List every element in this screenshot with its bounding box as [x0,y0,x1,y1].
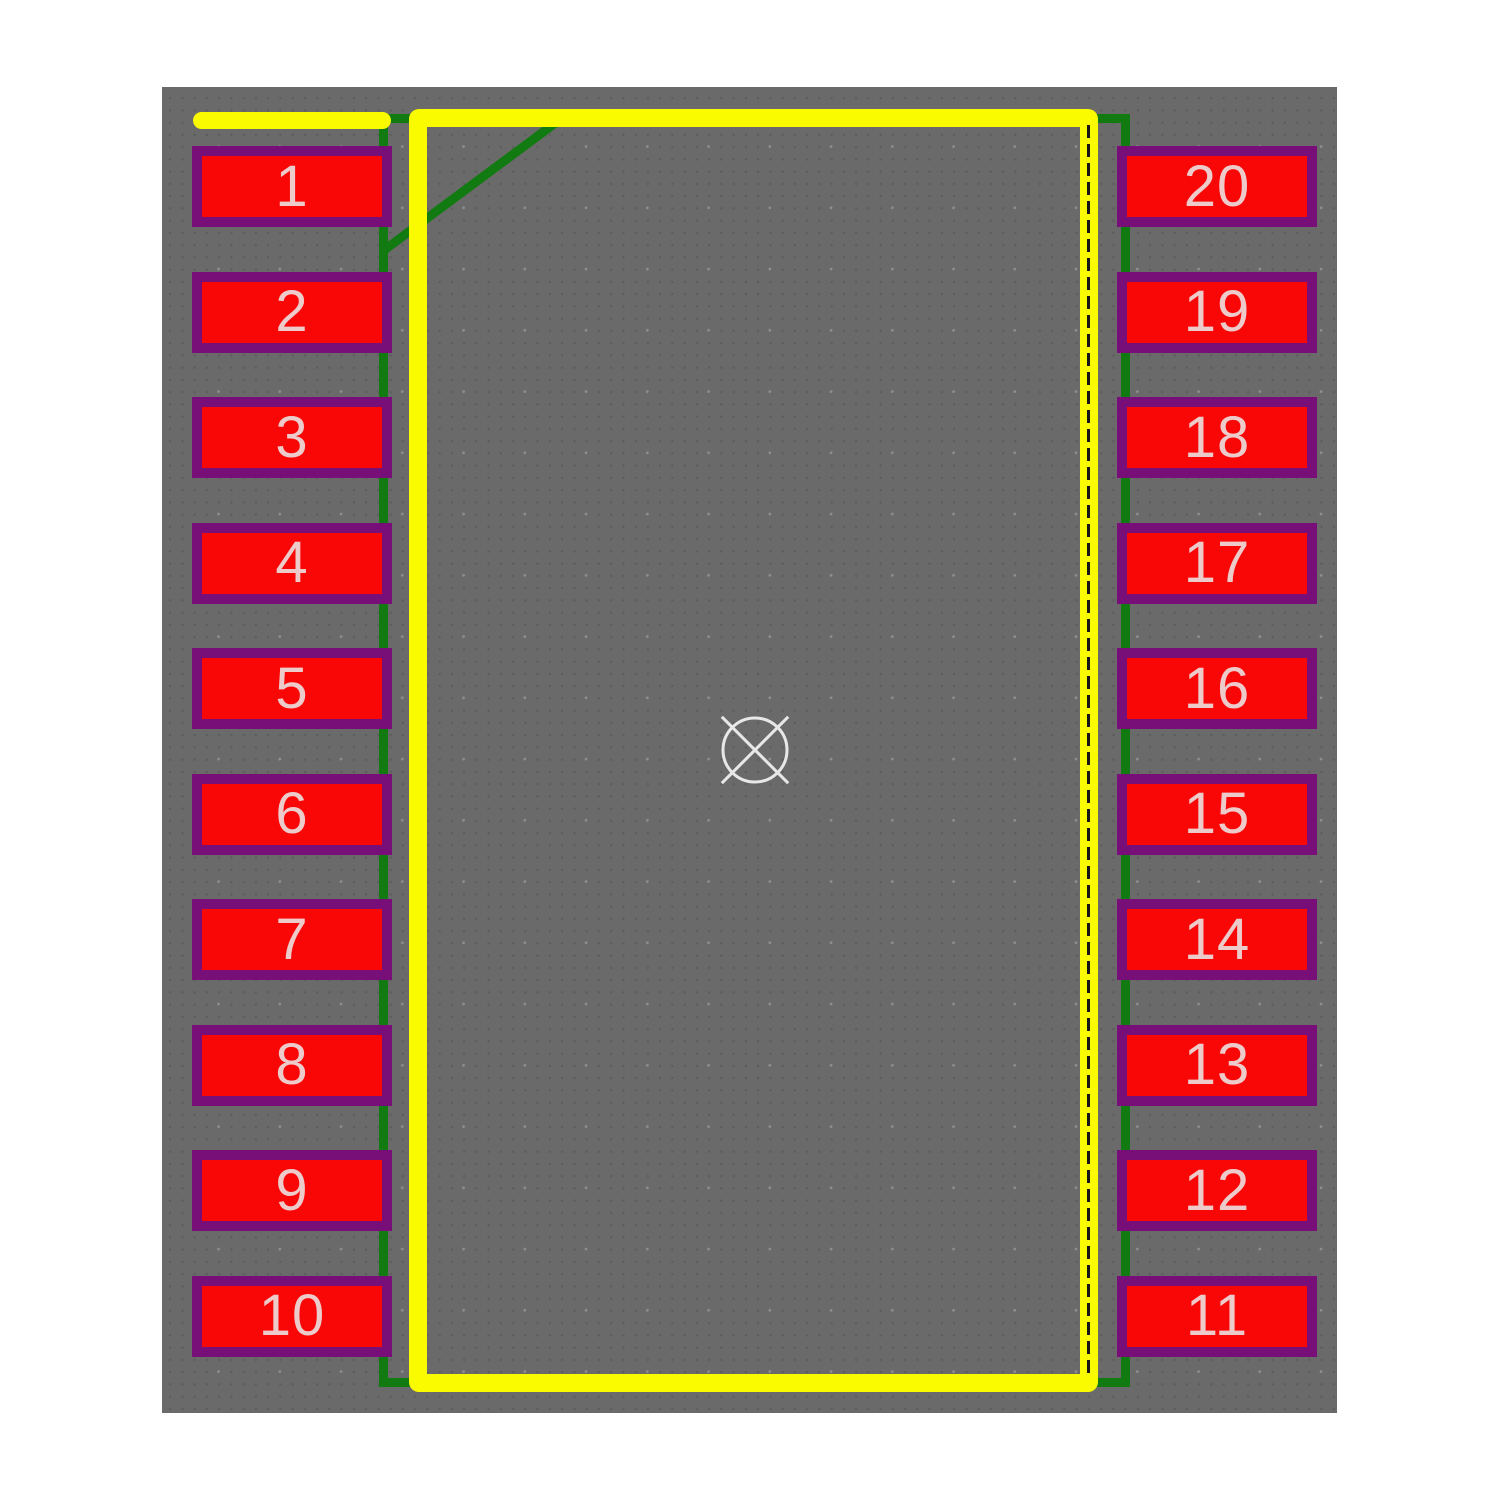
pad-7[interactable]: 7 [192,899,392,980]
pad-number: 16 [1184,660,1251,718]
pad-9[interactable]: 9 [192,1150,392,1231]
pad-17[interactable]: 17 [1117,523,1317,604]
pad-4[interactable]: 4 [192,523,392,604]
pad-number: 3 [275,409,308,467]
pad-number: 1 [275,158,308,216]
assembly-outline-dashed-line [1087,125,1090,1378]
pin1-silkscreen-marker [193,112,391,129]
pad-16[interactable]: 16 [1117,648,1317,729]
pad-20[interactable]: 20 [1117,146,1317,227]
pad-column-left: 1 2 3 4 5 6 7 8 9 10 [192,146,392,1357]
pad-number: 17 [1184,534,1251,592]
pad-number: 2 [275,283,308,341]
pad-8[interactable]: 8 [192,1025,392,1106]
pad-number: 15 [1184,785,1251,843]
pad-18[interactable]: 18 [1117,397,1317,478]
pad-number: 12 [1184,1162,1251,1220]
pad-11[interactable]: 11 [1117,1276,1317,1357]
pad-6[interactable]: 6 [192,774,392,855]
pad-number: 9 [275,1162,308,1220]
pad-number: 10 [259,1287,326,1345]
pad-number: 13 [1184,1036,1251,1094]
pad-19[interactable]: 19 [1117,272,1317,353]
pad-number: 8 [275,1036,308,1094]
pad-5[interactable]: 5 [192,648,392,729]
pad-3[interactable]: 3 [192,397,392,478]
pad-column-right: 20 19 18 17 16 15 14 13 12 11 [1117,146,1317,1357]
pad-number: 11 [1186,1287,1248,1345]
pad-14[interactable]: 14 [1117,899,1317,980]
pad-number: 4 [275,534,308,592]
footprint-canvas[interactable]: 1 2 3 4 5 6 7 8 9 10 20 19 18 17 16 15 1… [162,87,1337,1413]
pad-number: 19 [1184,283,1251,341]
pad-number: 7 [275,911,308,969]
pad-number: 20 [1184,158,1251,216]
pad-number: 6 [275,785,308,843]
origin-marker-icon [705,700,805,800]
pad-12[interactable]: 12 [1117,1150,1317,1231]
pad-1[interactable]: 1 [192,146,392,227]
pad-13[interactable]: 13 [1117,1025,1317,1106]
pad-number: 14 [1184,911,1251,969]
pad-number: 5 [275,660,308,718]
pad-number: 18 [1184,409,1251,467]
pad-2[interactable]: 2 [192,272,392,353]
pad-15[interactable]: 15 [1117,774,1317,855]
pad-10[interactable]: 10 [192,1276,392,1357]
